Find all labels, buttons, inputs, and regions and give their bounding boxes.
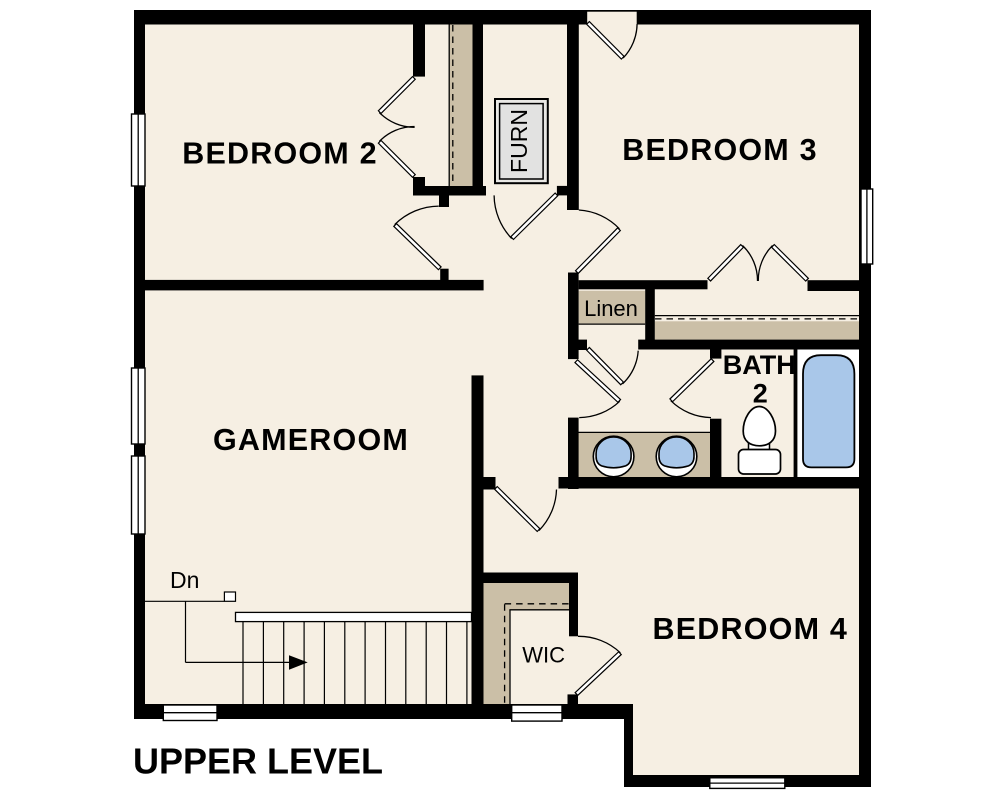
svg-text:BEDROOM 2: BEDROOM 2	[182, 136, 378, 170]
svg-text:BATH: BATH	[723, 350, 796, 380]
svg-text:UPPER LEVEL: UPPER LEVEL	[133, 740, 383, 781]
svg-text:2: 2	[753, 379, 768, 409]
svg-text:Linen: Linen	[584, 296, 638, 321]
svg-text:Dn: Dn	[170, 567, 199, 593]
svg-text:BEDROOM 3: BEDROOM 3	[622, 133, 818, 167]
svg-text:WIC: WIC	[522, 643, 565, 668]
svg-text:FURN: FURN	[506, 109, 532, 173]
svg-text:GAMEROOM: GAMEROOM	[213, 423, 409, 457]
svg-text:BEDROOM 4: BEDROOM 4	[653, 612, 849, 646]
